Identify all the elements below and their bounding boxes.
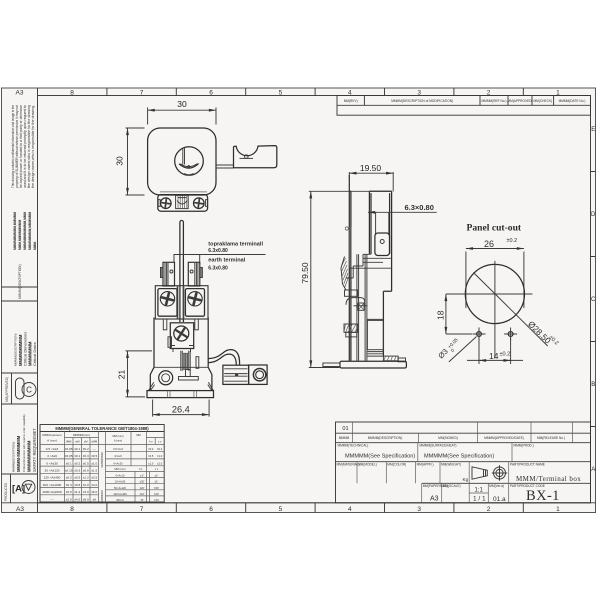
svg-text:MMMMMM: MMMMMM [100, 491, 104, 504]
svg-text:D: D [591, 212, 596, 218]
svg-text:01: 01 [342, 426, 348, 432]
svg-text:79.50: 79.50 [300, 262, 310, 284]
svg-text:±5': ±5' [140, 498, 144, 502]
svg-text:MM(RELEASE No.): MM(RELEASE No.) [537, 436, 565, 440]
svg-text:BX-1: BX-1 [526, 488, 560, 504]
svg-text:±0.2: ±0.2 [148, 447, 154, 451]
svg-text:±10': ±10' [154, 498, 159, 502]
svg-text:earth terminal: earth terminal [208, 258, 245, 264]
svg-text:A: A [591, 467, 595, 473]
svg-text:26: 26 [484, 239, 494, 249]
svg-text:4: 4 [348, 506, 352, 513]
svg-text:±0.5: ±0.5 [91, 454, 97, 458]
svg-text:120 <A≤400: 120 <A≤400 [44, 476, 61, 480]
svg-text:MMDimension: MMDimension [42, 433, 62, 437]
svg-text:±0.15: ±0.15 [65, 469, 73, 473]
svg-text:±0.5: ±0.5 [74, 476, 80, 480]
svg-text:±6.0: ±6.0 [91, 490, 97, 494]
svg-text:26.4: 26.4 [172, 405, 190, 415]
svg-text:±2.0: ±2.0 [157, 461, 163, 465]
svg-text:±1.2: ±1.2 [74, 490, 80, 494]
svg-text:7: 7 [140, 90, 144, 97]
svg-text:A (mm): A (mm) [114, 439, 122, 443]
svg-text:±0.8: ±0.8 [83, 469, 89, 473]
svg-text:MM(SIGNED): MM(SIGNED) [438, 436, 458, 440]
svg-text:MMM,MMMMMMMM: MMM,MMMMMMMM [18, 220, 22, 250]
svg-text:±2.0: ±2.0 [83, 483, 89, 487]
svg-text:14: 14 [489, 351, 499, 361]
svg-text:±4.0: ±4.0 [74, 497, 80, 501]
svg-text:±0.3: ±0.3 [83, 454, 89, 458]
svg-text:21: 21 [116, 370, 126, 380]
svg-text:±0.3: ±0.3 [66, 483, 72, 487]
svg-text:±0.2: ±0.2 [500, 352, 511, 358]
svg-text:MMMMM(See Specification): MMMMM(See Specification) [424, 454, 494, 460]
svg-text:8: 8 [70, 90, 74, 97]
svg-text:MM(COLOR): MM(COLOR) [387, 463, 406, 467]
svg-text:±0.1: ±0.1 [66, 461, 72, 465]
svg-text:MMMMMMMMM,MMMMM: MMMMMMMMM,MMMMM [13, 212, 17, 250]
svg-text:±20': ±20' [140, 486, 145, 490]
svg-text:±1.5: ±1.5 [91, 469, 97, 473]
svg-text:MM (mm): MM (mm) [112, 434, 123, 438]
svg-text:6: 6 [209, 506, 213, 513]
svg-text:±0.4: ±0.4 [157, 447, 163, 451]
svg-text:MMMM(SURFACE/HEAT): MMMM(SURFACE/HEAT) [420, 444, 457, 448]
svg-text:MMMM(DATE No.): MMMM(DATE No.) [559, 99, 586, 103]
svg-text:±4.0: ±4.0 [91, 483, 97, 487]
svg-text:±0.2: ±0.2 [83, 447, 89, 451]
svg-text:MMMMMMMMMMM,MMM: MMMMMMMMMMM,MMM [23, 212, 27, 250]
svg-text:f m: f m [139, 467, 143, 471]
svg-text:±1°: ±1° [140, 474, 144, 478]
svg-text:0.5 <A≤3: 0.5 <A≤3 [46, 447, 59, 451]
svg-text:MMMM(TECHNICAL): MMMM(TECHNICAL) [338, 444, 369, 448]
svg-text:MM: MM [136, 433, 140, 437]
svg-text:±1.0: ±1.0 [91, 461, 97, 465]
svg-text:400<A: 400<A [116, 498, 124, 502]
svg-text:1: 1 [556, 506, 560, 513]
svg-text:10<A≤50: 10<A≤50 [115, 480, 126, 484]
svg-text:MMMMM(See Specification): MMMMM(See Specification) [345, 454, 415, 460]
svg-text:MMMM(mm): MMMM(mm) [73, 433, 90, 437]
svg-text:6<A≤30: 6<A≤30 [114, 461, 124, 465]
svg-text:MMMM(GENERAL TOLERANCE GB/T180: MMMM(GENERAL TOLERANCE GB/T1804-1988) [55, 426, 149, 431]
svg-text:MMMM: MMMM [339, 436, 350, 440]
svg-text:3: 3 [417, 506, 421, 513]
svg-text:±1.0: ±1.0 [148, 461, 154, 465]
svg-text:0<A≤10: 0<A≤10 [116, 474, 126, 478]
svg-text:fMM: fMM [66, 440, 72, 444]
svg-text:±0.2: ±0.2 [74, 461, 80, 465]
svg-text:A3: A3 [16, 90, 24, 97]
svg-text:±0.3: ±0.3 [74, 469, 80, 473]
svg-text:8: 8 [70, 506, 74, 513]
svg-text:±8.0: ±8.0 [83, 497, 89, 501]
svg-text:MMMMMMM: MMMMMMM [100, 452, 104, 467]
svg-text:±0.2: ±0.2 [507, 238, 518, 244]
svg-text:MM(CHECK): MM(CHECK) [534, 99, 553, 103]
svg-text:±30': ±30' [140, 480, 145, 484]
svg-text:6: 6 [209, 90, 213, 97]
svg-text:6.3x0.80: 6.3x0.80 [208, 265, 228, 271]
svg-text:30: 30 [177, 99, 187, 109]
svg-text:[A]: [A] [12, 484, 25, 495]
svg-text:Critical dimension with need t: Critical dimension with need to order ca… [22, 414, 26, 472]
svg-text:±0.5: ±0.5 [83, 461, 89, 465]
svg-text:MM(APPROVED): MM(APPROVED) [507, 99, 532, 103]
svg-text:±0.5: ±0.5 [66, 490, 72, 494]
svg-text:±2.0: ±2.0 [66, 497, 72, 501]
svg-text:MM(MODEL): MM(MODEL) [358, 463, 377, 467]
svg-text:B: B [591, 382, 595, 388]
svg-text:f m: f m [149, 440, 153, 444]
svg-text:A3: A3 [16, 506, 24, 513]
svg-text:6 <A≤30: 6 <A≤30 [46, 461, 58, 465]
svg-text:3 <A≤6: 3 <A≤6 [47, 454, 57, 458]
svg-text:±10': ±10' [140, 492, 145, 496]
svg-text:MM(APPROVED): MM(APPROVED) [5, 377, 9, 402]
svg-text:MMMMMMMMM: MMMMMMMMM [26, 440, 31, 472]
svg-text:1000<A≤2000: 1000<A≤2000 [42, 490, 62, 494]
svg-text:±1.0: ±1.0 [157, 454, 163, 458]
svg-text:±0.1: ±0.1 [74, 454, 80, 458]
svg-text:01.a: 01.a [493, 496, 506, 503]
svg-text:Critical Dates: Critical Dates [32, 342, 37, 366]
svg-text:MM(SCALE): MM(SCALE) [443, 484, 461, 488]
svg-text:3<A≤6: 3<A≤6 [114, 454, 122, 458]
svg-text:50<A≤120: 50<A≤120 [114, 486, 126, 490]
svg-text:±0.8: ±0.8 [74, 483, 80, 487]
svg-text:C: C [26, 386, 32, 395]
svg-text:MMMM(DESCRIPTION of MODIFICATI: MMMM(DESCRIPTION of MODIFICATION) [391, 99, 453, 103]
svg-text:E: E [591, 127, 595, 133]
svg-text:vMM: vMM [91, 440, 98, 444]
svg-text:MMMM(REF No.): MMMM(REF No.) [482, 99, 507, 103]
svg-text:1 / 1: 1 / 1 [473, 496, 486, 503]
svg-text:0.5<A≤3: 0.5<A≤3 [113, 447, 123, 451]
svg-text:±0.5: ±0.5 [148, 454, 154, 458]
svg-text:C: C [591, 297, 596, 303]
svg-text:MM(APPR.): MM(APPR.) [417, 463, 434, 467]
svg-text:PART/PRODUCT NAME: PART/PRODUCT NAME [510, 463, 545, 467]
svg-text:120<A≤400: 120<A≤400 [113, 492, 127, 496]
svg-text:MMMMMMMM,MMMMMM: MMMMMMMM,MMMMMM [28, 212, 32, 250]
svg-text:6.3x0.80: 6.3x0.80 [208, 248, 228, 254]
svg-text:7: 7 [140, 506, 144, 513]
svg-text:MM(MATERIAL): MM(MATERIAL) [337, 463, 360, 467]
svg-text:±3.0: ±3.0 [83, 490, 89, 494]
svg-text:30 <A≤120: 30 <A≤120 [44, 469, 59, 473]
svg-text:MM(WEIGHT): MM(WEIGHT) [441, 463, 461, 467]
svg-text:topraklama terminall: topraklama terminall [208, 242, 263, 248]
svg-text:MM(Ver.a): MM(Ver.a) [489, 484, 504, 488]
svg-text:±1°: ±1° [155, 480, 159, 484]
svg-text:the design owner,who is respon: the design owner,who is responsible for … [31, 105, 35, 188]
svg-text:SAFATY REQUIREMET: SAFATY REQUIREMET [32, 428, 37, 472]
svg-text:A (mm): A (mm) [47, 439, 57, 443]
svg-text:±1°: ±1° [155, 474, 159, 478]
svg-text:MMM.: MMM. [33, 241, 37, 250]
svg-text:18: 18 [436, 310, 446, 320]
svg-text:mM: mM [75, 440, 80, 444]
svg-text:30: 30 [115, 156, 125, 166]
svg-text:2: 2 [487, 506, 491, 513]
svg-text:19.50: 19.50 [360, 163, 382, 173]
svg-text:±0.1: ±0.1 [74, 447, 80, 451]
svg-text:±1.2: ±1.2 [83, 476, 89, 480]
svg-text:MMMM(DESCRIPTION): MMMM(DESCRIPTION) [368, 436, 403, 440]
svg-text:±0.05: ±0.05 [65, 454, 73, 458]
svg-text:A3: A3 [430, 496, 439, 503]
svg-text:Kg: Kg [463, 477, 469, 482]
svg-text:MMM/Terminal box: MMM/Terminal box [516, 475, 581, 483]
svg-text:±30': ±30' [154, 486, 159, 490]
svg-text:±2.5: ±2.5 [91, 476, 97, 480]
svg-text:5: 5 [279, 90, 283, 97]
svg-text:MMMM(DESCRIPTION): MMMM(DESCRIPTION) [18, 264, 22, 299]
svg-text:MMMM(APPROVED/DATE): MMMM(APPROVED/DATE) [484, 436, 524, 440]
svg-text:±0.05: ±0.05 [65, 447, 73, 451]
svg-text:±8: ±8 [92, 497, 96, 501]
svg-text:±20': ±20' [154, 492, 159, 496]
svg-text:PRODUCED: PRODUCED [4, 482, 8, 501]
svg-text:Panel cut-out: Panel cut-out [467, 223, 522, 234]
svg-text:6.3×0.80: 6.3×0.80 [405, 203, 434, 212]
svg-text:MMM(PROD.): MMM(PROD.) [514, 444, 534, 448]
svg-text:5: 5 [279, 506, 283, 513]
svg-text:MM(REV): MM(REV) [344, 99, 358, 103]
svg-text:MMMM-MMMMMM: MMMM-MMMMMM [16, 435, 21, 472]
svg-text:400 <A≤1000: 400 <A≤1000 [43, 483, 62, 487]
svg-text:MM (mm): MM (mm) [114, 467, 125, 471]
svg-text:±0.2: ±0.2 [66, 476, 72, 480]
svg-text:1:1: 1:1 [475, 488, 484, 494]
